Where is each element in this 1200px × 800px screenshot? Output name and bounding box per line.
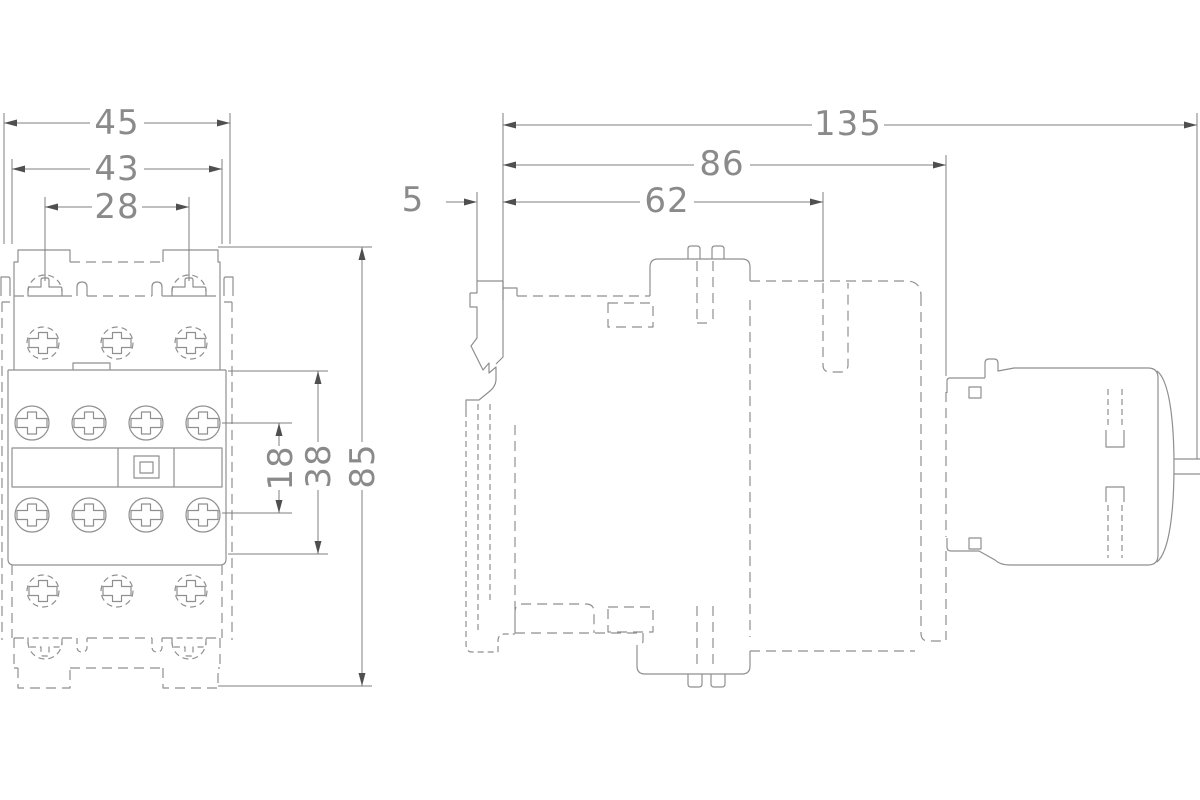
aux-screw-top-2 [72,406,106,440]
aux-screw-top-3 [129,406,163,440]
load-screw-3 [175,575,207,607]
front-hidden-outline [2,262,232,688]
aux-screw-bottom-3 [129,498,163,532]
dim-coil-terminal-spacing: 28 [45,187,189,281]
bottom-rib-right [152,638,162,652]
front-dimensions: 45 43 28 18 38 [4,103,383,686]
dim-total-height-label: 85 [343,443,383,488]
drawing-canvas: 45 43 28 18 38 [0,0,1200,800]
dim-front-depth-label: 62 [644,181,689,221]
side-din-clip-solid [466,281,517,411]
aux-screw-bottom-2 [72,498,106,532]
dim-body-width-label: 43 [94,149,139,189]
side-bottom-bump [637,645,750,687]
aux-screw-top-1 [15,406,49,440]
dim-rail-offset: 5 [402,180,477,281]
contactor-dimension-drawing: 45 43 28 18 38 [0,0,1200,800]
aux-screw-bottom-1 [15,498,49,532]
top-rib-left [77,282,87,296]
bottom-coil-screw-right [172,638,206,659]
dim-body-depth: 86 [503,144,946,376]
front-view [1,250,233,688]
dim-body-depth-label: 86 [699,144,744,184]
dim-total-width-label: 45 [94,103,139,143]
aux-block-hidden-details [1108,389,1122,558]
dim-total-depth-label: 135 [814,104,882,144]
line-screw-3 [175,327,207,359]
line-screw-1 [27,327,59,359]
side-view [466,246,1200,687]
line-screw-2 [101,327,133,359]
dim-aux-terminal-spacing-label: 18 [261,445,301,490]
dim-center-section-height-label: 38 [299,443,339,488]
load-screw-1 [27,575,59,607]
dim-front-depth: 62 [503,181,823,281]
dim-coil-terminal-spacing-label: 28 [94,187,139,227]
front-solid-outline [1,250,233,565]
bottom-coil-screw-left [28,638,62,659]
aux-screw-bottom-4 [186,498,220,532]
dim-aux-terminal-spacing: 18 [222,423,301,513]
load-screw-2 [101,575,133,607]
dim-rail-offset-label: 5 [402,180,425,220]
side-body-hidden-outline [515,261,946,670]
top-rib-right [152,282,162,296]
bottom-rib-left [77,638,87,652]
aux-screw-top-4 [186,406,220,440]
aux-block-outline [947,359,1200,565]
side-top-bump [650,246,750,296]
side-din-clip-hidden [466,404,515,652]
